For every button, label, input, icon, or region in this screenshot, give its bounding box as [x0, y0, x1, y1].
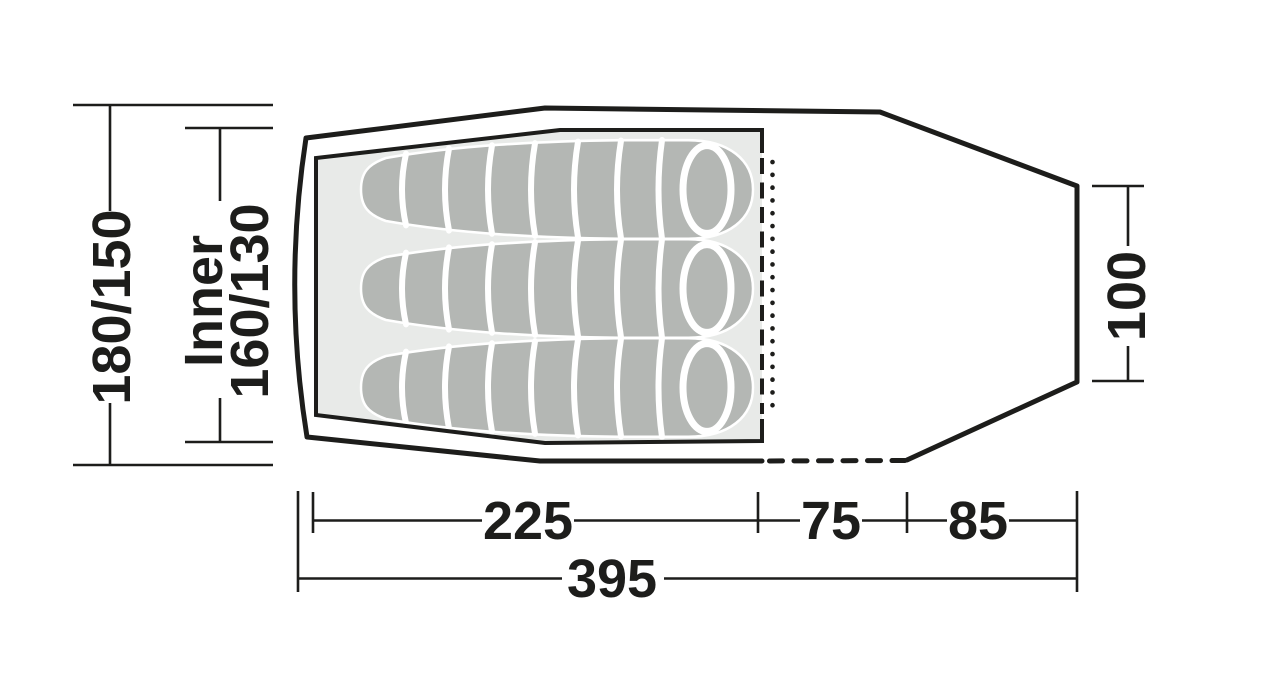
rear-width-label: 100 [1097, 251, 1157, 341]
sleeping-bag-3 [361, 338, 753, 437]
sleeping-bag-2 [361, 239, 753, 338]
porch-depth-label: 85 [948, 491, 1008, 551]
front-depth-label: 75 [801, 491, 861, 551]
inner-length-label: 225 [483, 491, 573, 551]
diagram-canvas: 180/150 Inner 160/130 100 225 75 85 395 [0, 0, 1267, 700]
total-length-label: 395 [567, 549, 657, 609]
sleeping-bag-1 [361, 140, 753, 239]
tent-outline-dashed-groundsheet [762, 461, 905, 462]
inner-width-label: 160/130 [220, 203, 280, 398]
outer-width-label: 180/150 [82, 209, 142, 404]
sleeping-bags [361, 140, 753, 437]
tent-dimension-diagram: 180/150 Inner 160/130 100 225 75 85 395 [0, 0, 1267, 700]
